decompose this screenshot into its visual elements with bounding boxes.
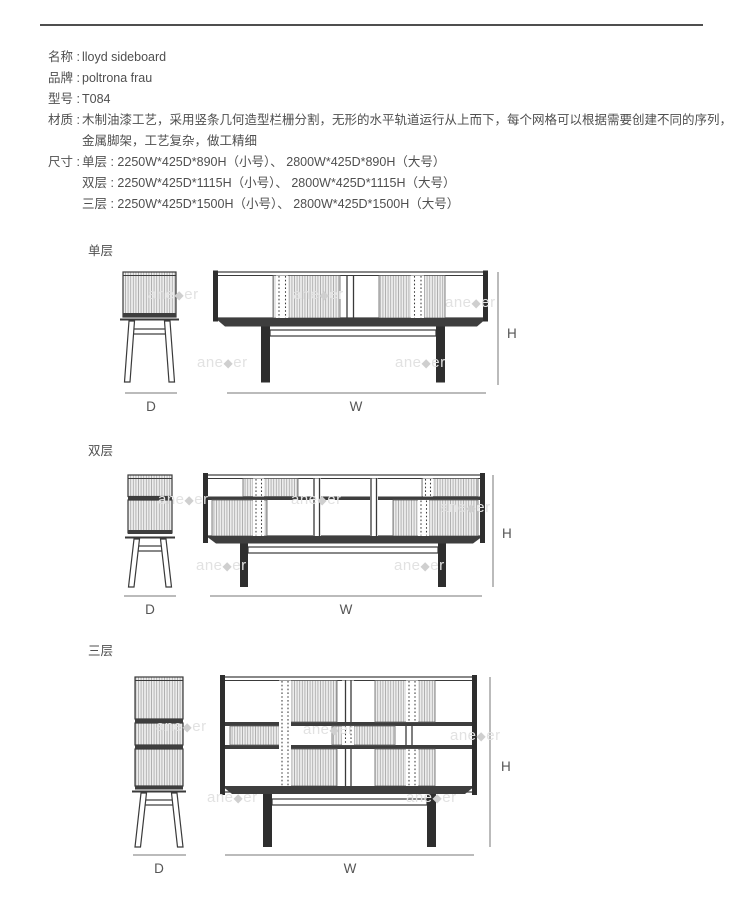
name-value: lloyd sideboard <box>82 47 166 68</box>
size-line-triple: 三层 : 2250W*425D*1500H（小号）、 2800W*425D*15… <box>82 194 459 215</box>
spec-sheet: 名称 : lloyd sideboard 品牌 : poltrona frau … <box>0 0 750 922</box>
single-side-view-drawing <box>120 272 179 382</box>
name-label: 名称 : <box>48 47 82 68</box>
width-dimension-label: W <box>344 861 357 876</box>
spec-row-brand: 品牌 : poltrona frau <box>48 68 708 89</box>
depth-dimension-label: D <box>146 399 156 414</box>
spec-row-model: 型号 : T084 <box>48 89 708 110</box>
triple-side-view-drawing <box>132 677 186 847</box>
size-line-double: 双层 : 2250W*425D*1115H（小号）、 2800W*425D*11… <box>82 173 459 194</box>
top-divider <box>40 24 703 26</box>
height-dimension-label: H <box>501 759 511 774</box>
spec-row-name: 名称 : lloyd sideboard <box>48 47 708 68</box>
height-dimension-label: H <box>507 326 517 341</box>
material-value: 木制油漆工艺，采用竖条几何造型栏栅分割，无形的水平轨道运行从上而下，每个网格可以… <box>82 110 732 152</box>
size-line-single: 单层 : 2250W*425D*890H（小号）、 2800W*425D*890… <box>82 152 459 173</box>
single-front-view-drawing <box>213 271 488 383</box>
figure-single-layer: D W H <box>80 238 540 420</box>
size-value: 单层 : 2250W*425D*890H（小号）、 2800W*425D*890… <box>82 152 459 215</box>
brand-value: poltrona frau <box>82 68 152 89</box>
width-dimension-label: W <box>340 602 353 617</box>
figure-triple-layer: D W H <box>80 638 540 882</box>
double-front-view-drawing <box>203 473 485 587</box>
double-side-view-drawing <box>125 475 175 587</box>
depth-dimension-label: D <box>154 861 164 876</box>
spec-row-size: 尺寸 : 单层 : 2250W*425D*890H（小号）、 2800W*425… <box>48 152 708 215</box>
figure-double-layer: D W H <box>80 438 540 626</box>
size-label: 尺寸 : <box>48 152 82 215</box>
width-dimension-label: W <box>350 399 363 414</box>
product-specs: 名称 : lloyd sideboard 品牌 : poltrona frau … <box>48 47 708 215</box>
depth-dimension-label: D <box>145 602 155 617</box>
model-value: T084 <box>82 89 111 110</box>
triple-front-view-drawing <box>220 675 477 847</box>
spec-row-material: 材质 : 木制油漆工艺，采用竖条几何造型栏栅分割，无形的水平轨道运行从上而下，每… <box>48 110 708 152</box>
material-line-1: 木制油漆工艺，采用竖条几何造型栏栅分割，无形的水平轨道运行从上而下，每个网格可以… <box>82 110 732 131</box>
model-label: 型号 : <box>48 89 82 110</box>
material-label: 材质 : <box>48 110 82 152</box>
height-dimension-label: H <box>502 526 512 541</box>
material-line-2: 金属脚架，工艺复杂，做工精细 <box>82 131 732 152</box>
brand-label: 品牌 : <box>48 68 82 89</box>
